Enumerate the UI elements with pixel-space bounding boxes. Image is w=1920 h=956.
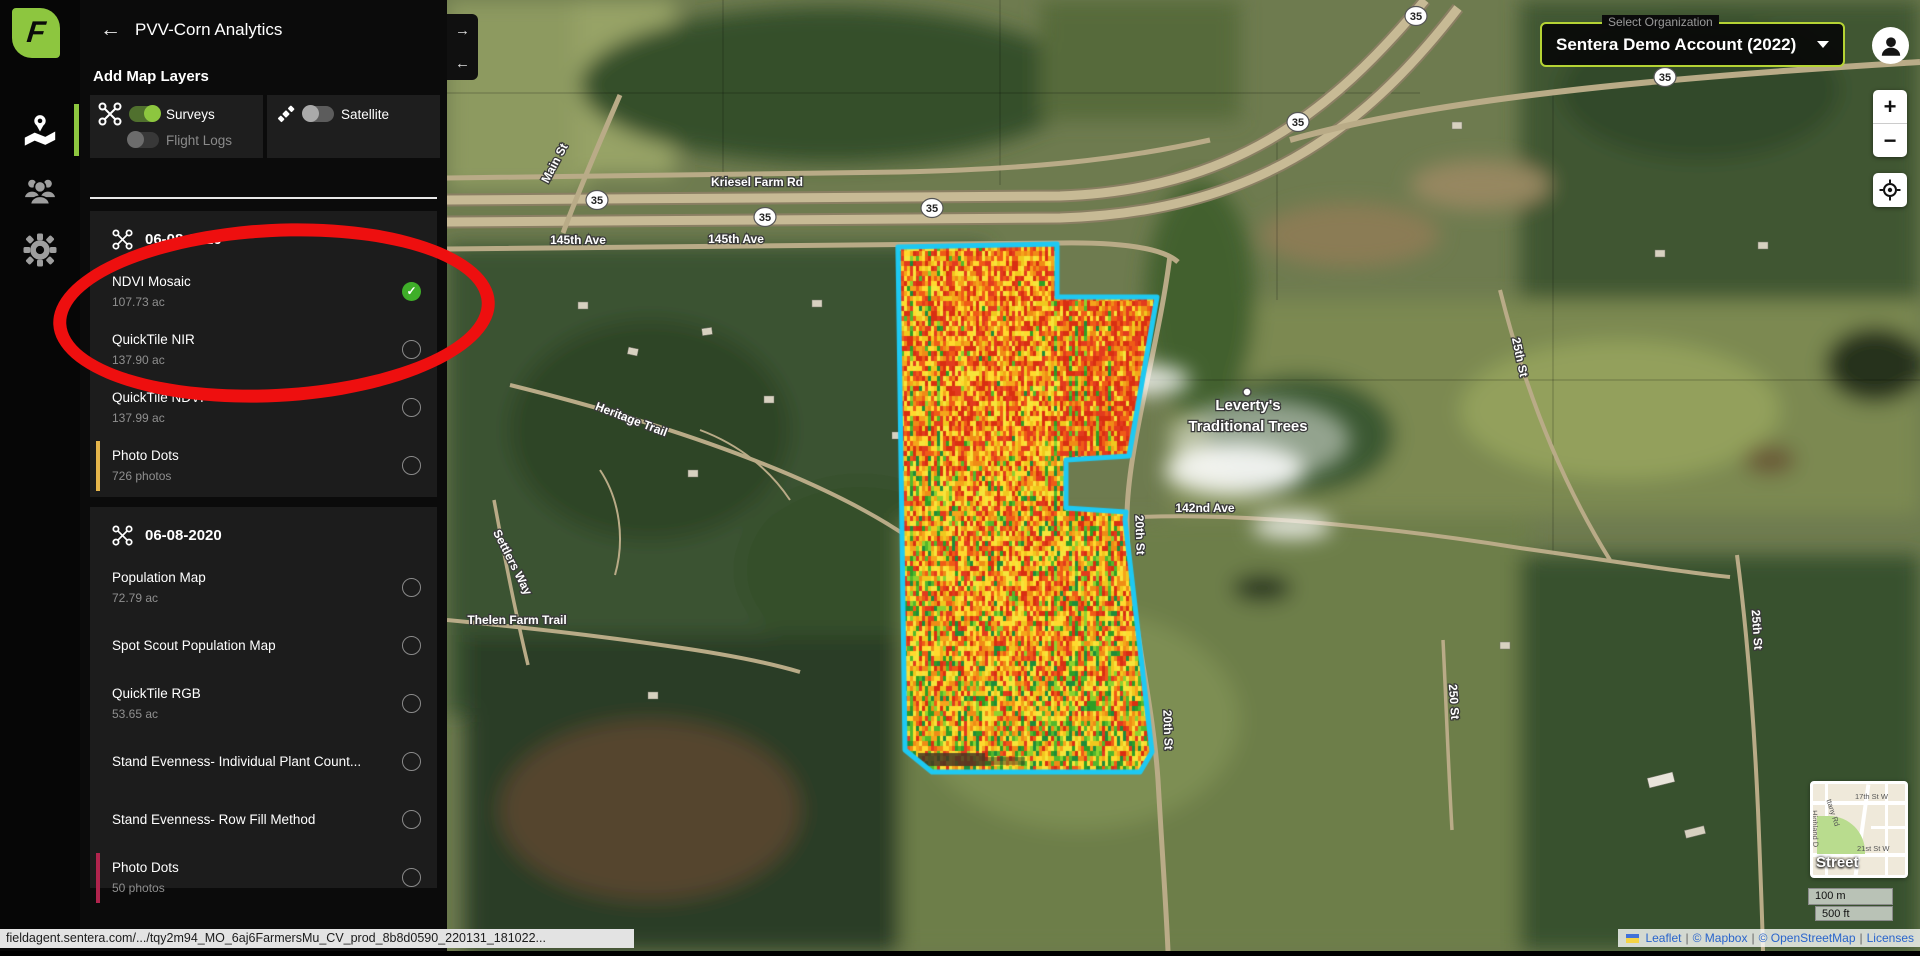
layer-subtitle: 53.65 ac	[112, 707, 201, 721]
ukraine-flag-icon	[1626, 934, 1639, 943]
scale-bar-imperial: 500 ft	[1815, 906, 1893, 921]
layer-row-quicktile-rgb[interactable]: QuickTile RGB 53.65 ac	[112, 682, 421, 724]
shield-35: 35	[1410, 11, 1422, 23]
layer-row-photo-dots[interactable]: Photo Dots 50 photos	[112, 856, 421, 898]
crosshair-icon	[1879, 179, 1901, 201]
layer-subtitle: 137.90 ac	[112, 353, 195, 367]
street-basemap-label: Street	[1816, 854, 1859, 871]
rail-item-map[interactable]	[12, 106, 68, 154]
gear-icon	[22, 232, 58, 268]
layer-subtitle: 107.73 ac	[112, 295, 191, 309]
poi-name-line2: Traditional Trees	[1188, 418, 1307, 435]
app-rail: F	[0, 0, 80, 951]
status-bar-link-preview: fieldagent.sentera.com/.../tqy2m94_MO_6a…	[0, 929, 634, 948]
rail-item-team[interactable]	[12, 166, 68, 214]
layer-row-population-map[interactable]: Population Map 72.79 ac	[112, 566, 421, 608]
rail-item-settings[interactable]	[12, 226, 68, 274]
layer-radio[interactable]	[402, 340, 421, 359]
panel-header: ← PVV-Corn Analytics	[100, 18, 282, 42]
mini-road	[1871, 826, 1905, 829]
drone-icon	[112, 229, 133, 250]
layer-subtitle: 137.99 ac	[112, 411, 204, 425]
map-canvas[interactable]: 35 35 35 35 35 35 Kriesel Farm Rd 145th …	[447, 0, 1920, 951]
label-145th-ave: 145th Ave	[550, 233, 606, 247]
layer-radio[interactable]	[402, 868, 421, 887]
ndvi-mosaic-field-overlay[interactable]	[895, 241, 1161, 779]
drone-icon	[112, 525, 133, 546]
shield-35: 35	[1292, 117, 1304, 129]
photo-dots-accent-bar	[96, 853, 100, 903]
layer-subtitle: 726 photos	[112, 469, 179, 483]
openstreetmap-link[interactable]: © OpenStreetMap	[1759, 931, 1856, 945]
scale-bar-metric: 100 m	[1808, 888, 1893, 905]
label-145th-ave: 145th Ave	[708, 232, 764, 246]
expand-right-arrow[interactable]: →	[455, 22, 470, 39]
flight-logs-toggle[interactable]	[129, 132, 159, 148]
mini-label-highland: Highland D	[1810, 810, 1820, 847]
panel-collapse-tab[interactable]: → ←	[447, 14, 478, 80]
label-thelen-farm-trail: Thelen Farm Trail	[467, 613, 566, 627]
layer-row-quicktile-ndvi[interactable]: QuickTile NDVI 137.99 ac	[112, 386, 421, 428]
surveys-toggle[interactable]	[129, 106, 159, 122]
organization-select[interactable]: Select Organization Sentera Demo Account…	[1540, 22, 1845, 67]
satellite-toggle-card: Satellite	[267, 95, 440, 158]
layer-selected-check-icon[interactable]: ✓	[402, 282, 421, 301]
logo-letter: F	[25, 16, 47, 50]
layer-label: QuickTile NIR	[112, 332, 195, 347]
survey-date: 06-08-2020	[145, 231, 222, 248]
layer-row-stand-evenness-plant-count[interactable]: Stand Evenness- Individual Plant Count..…	[112, 740, 421, 782]
person-icon	[1878, 33, 1904, 59]
label-142nd-ave: 142nd Ave	[1175, 501, 1234, 515]
layer-label: Photo Dots	[112, 448, 179, 463]
label-20th-st: 20th St	[1160, 710, 1175, 750]
satellite-toggle[interactable]	[304, 106, 334, 122]
organization-select-label: Select Organization	[1602, 15, 1719, 29]
shield-35: 35	[926, 203, 938, 215]
satellite-basemap: 35 35 35 35 35 35 Kriesel Farm Rd 145th …	[447, 0, 1920, 951]
sentera-logo[interactable]: F	[12, 8, 60, 58]
shield-35: 35	[591, 195, 603, 207]
map-pin-icon	[21, 110, 59, 150]
layer-label: Population Map	[112, 570, 206, 585]
layer-radio[interactable]	[402, 752, 421, 771]
layer-radio[interactable]	[402, 578, 421, 597]
layer-row-quicktile-nir[interactable]: QuickTile NIR 137.90 ac	[112, 328, 421, 370]
map-attribution: Leaflet | © Mapbox | © OpenStreetMap | L…	[1618, 929, 1920, 947]
organization-select-value: Sentera Demo Account (2022)	[1556, 35, 1796, 55]
active-nav-indicator	[74, 104, 79, 156]
layer-row-ndvi-mosaic[interactable]: NDVI Mosaic 107.73 ac ✓	[112, 270, 421, 312]
layer-subtitle: 72.79 ac	[112, 591, 206, 605]
layer-radio[interactable]	[402, 694, 421, 713]
zoom-in-button[interactable]: +	[1873, 90, 1907, 124]
locate-me-button[interactable]	[1873, 173, 1907, 207]
layer-label: QuickTile RGB	[112, 686, 201, 701]
satellite-icon	[275, 103, 297, 125]
layer-label: Stand Evenness- Individual Plant Count..…	[112, 754, 361, 769]
layer-row-photo-dots[interactable]: Photo Dots 726 photos	[112, 444, 421, 486]
layer-label: NDVI Mosaic	[112, 274, 191, 289]
layer-radio[interactable]	[402, 456, 421, 475]
survey-date: 06-08-2020	[145, 527, 222, 544]
shield-35: 35	[759, 212, 771, 224]
shield-35: 35	[1659, 72, 1671, 84]
layer-label: Photo Dots	[112, 860, 179, 875]
collapse-left-arrow[interactable]: ←	[455, 55, 470, 72]
panel-divider	[90, 197, 437, 199]
layer-label: QuickTile NDVI	[112, 390, 204, 405]
back-arrow-button[interactable]: ←	[100, 18, 121, 42]
label-250-st: 250 St	[1446, 684, 1462, 720]
layer-row-stand-evenness-row-fill[interactable]: Stand Evenness- Row Fill Method	[112, 798, 421, 840]
mapbox-link[interactable]: © Mapbox	[1693, 931, 1748, 945]
layer-label: Spot Scout Population Map	[112, 638, 276, 653]
layer-row-spot-scout-population[interactable]: Spot Scout Population Map	[112, 624, 421, 666]
people-icon	[21, 171, 59, 209]
user-avatar[interactable]	[1872, 27, 1909, 64]
mini-label-17th: 17th St W	[1855, 792, 1888, 801]
layer-radio[interactable]	[402, 810, 421, 829]
survey-section: 06-08-2020 Population Map 72.79 ac Spot …	[90, 507, 437, 888]
chevron-down-icon	[1817, 41, 1829, 48]
drone-icon	[98, 102, 122, 126]
surveys-toggle-label: Surveys	[166, 107, 215, 122]
flight-logs-toggle-label: Flight Logs	[166, 133, 232, 148]
separator: |	[1685, 931, 1688, 945]
label-kriesel-farm-rd: Kriesel Farm Rd	[711, 175, 803, 189]
poi-name-line1: Leverty's	[1215, 397, 1280, 414]
mini-label-21st: 21st St W	[1857, 844, 1890, 853]
add-map-layers-heading: Add Map Layers	[93, 68, 209, 85]
layers-panel: ← PVV-Corn Analytics Add Map Layers Surv…	[80, 0, 447, 951]
label-25th-st: 25th St	[1749, 609, 1766, 650]
basemap-switcher-street[interactable]: 17th St W 21st St W ttany Rd Highland D …	[1810, 781, 1908, 878]
map-zoom-control: + −	[1873, 90, 1907, 157]
photo-dots-accent-bar	[96, 441, 100, 491]
layer-label: Stand Evenness- Row Fill Method	[112, 812, 315, 827]
licenses-link[interactable]: Licenses	[1867, 931, 1914, 945]
leaflet-link[interactable]: Leaflet	[1645, 931, 1681, 945]
page-title: PVV-Corn Analytics	[135, 20, 282, 40]
survey-section: 06-08-2020 NDVI Mosaic 107.73 ac ✓ Quick…	[90, 211, 437, 497]
separator: |	[1860, 931, 1863, 945]
layer-subtitle: 50 photos	[112, 881, 179, 895]
surveys-toggle-card: Surveys Flight Logs	[90, 95, 263, 158]
separator: |	[1751, 931, 1754, 945]
zoom-out-button[interactable]: −	[1873, 124, 1907, 157]
satellite-toggle-label: Satellite	[341, 107, 389, 122]
layer-radio[interactable]	[402, 636, 421, 655]
layer-radio[interactable]	[402, 398, 421, 417]
